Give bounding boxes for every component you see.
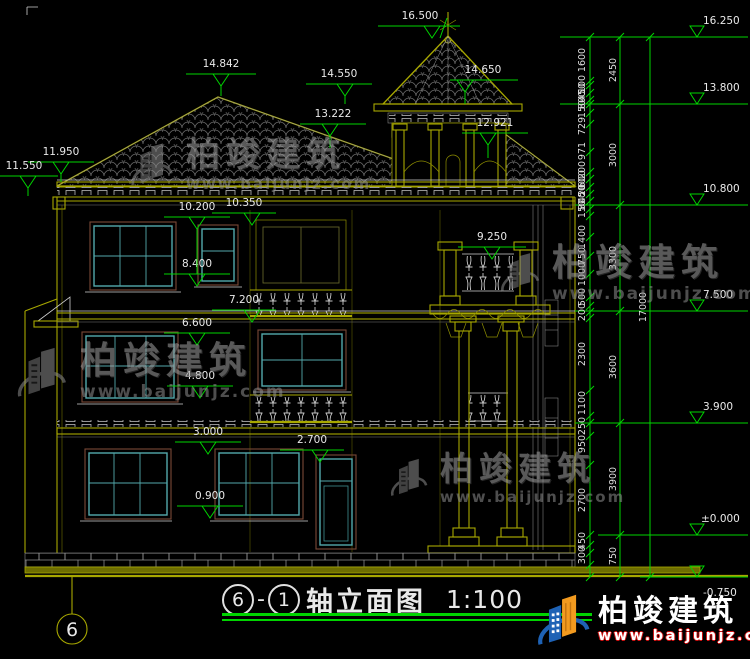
watermark-logo-icon [498,244,544,302]
level-label: 3.900 [703,401,733,413]
level-label: 13.800 [703,82,740,94]
window-1f-left [80,449,172,521]
watermark-logo-icon [14,342,72,404]
watermark: 柏竣建筑 www.baijunjz.com [14,342,286,404]
watermark-url: www.baijunjz.com [440,488,625,506]
dim-label: 1600 [577,48,588,72]
porch-columns [449,316,527,546]
dim-label: 1100 [577,391,588,415]
watermark-url: www.baijunjz.com [552,284,750,304]
dim-label: 200 [577,303,588,321]
watermark: 柏竣建筑 www.baijunjz.com [498,244,750,304]
watermark-brand: 柏竣建筑 [186,138,371,172]
elevation-drawing: 16.500 14.842 14.550 14.650 13.222 12.92… [0,0,750,659]
level-label: 16.500 [402,10,439,22]
level-marks-right: 16.250 13.800 10.800 7.500 3.900 ±0.000 … [690,15,740,599]
window-1f-center [210,449,308,521]
level-label: 11.550 [6,160,43,172]
sheet-corner-mark [27,7,38,15]
level-label: 2.700 [297,434,327,446]
side-windows-right [545,300,558,456]
level-label: 3.000 [193,426,223,438]
dim-label: 150 [577,100,588,118]
watermark-url: www.baijunjz.com [80,382,286,402]
watermark-brand: 柏竣建筑 [552,244,750,281]
cad-elevation-sheet: 16.500 14.842 14.550 14.650 13.222 12.92… [0,0,750,659]
level-label: 14.550 [321,68,358,80]
window-3f-narrow [194,225,242,287]
company-logo: 柏竣建筑 www.baijunjz.com [534,588,750,652]
level-label: 14.842 [203,58,240,70]
balustrade-2f-porch [468,393,508,421]
axis-dash: - [257,587,265,612]
level-label: 9.250 [477,231,507,243]
level-label: 10.350 [226,197,263,209]
dim-label: 300 [577,546,588,564]
axis-bubble-label: 6 [66,619,78,641]
level-label: 10.800 [703,183,740,195]
level-label: ±0.000 [701,513,740,525]
level-label: 16.250 [703,15,740,27]
level-label: 14.650 [465,64,502,76]
drawing-scale: 1:100 [446,585,523,614]
watermark-brand: 柏竣建筑 [80,342,286,379]
dim-label: 971 [577,142,588,160]
window-3f-center [256,220,346,290]
company-logo-url: www.baijunjz.com [598,628,750,644]
balustrade-3f-center [250,290,352,316]
ground-plinth [25,553,748,576]
axis-circle-end: 1 [268,584,300,616]
axis-circle-start: 6 [222,584,254,616]
dim-label: 3600 [608,355,619,379]
entry-door [316,455,356,549]
dim-label: 729 [577,117,588,135]
dim-label: 250 [577,417,588,435]
watermark: 柏竣建筑 www.baijunjz.com [128,138,371,193]
watermark-brand: 柏竣建筑 [440,452,625,485]
level-label: 12.921 [477,117,514,129]
window-3f-left [85,222,181,292]
level-label: 10.200 [179,201,216,213]
dim-label: 2450 [608,58,619,82]
level-label: 0.900 [195,490,225,502]
turret [374,12,522,186]
company-logo-brand: 柏竣建筑 [598,596,750,628]
watermark: 柏竣建筑 www.baijunjz.com [388,452,625,506]
company-logo-icon [534,588,592,652]
dim-label: 3000 [608,143,619,167]
axis-grid-6: 6 [57,576,87,644]
level-label: 11.950 [43,146,80,158]
dim-label: 2300 [577,342,588,366]
watermark-url: www.baijunjz.com [186,175,371,193]
level-label: 13.222 [315,108,352,120]
watermark-logo-icon [388,452,432,504]
dim-label: 150 [577,200,588,218]
level-label: 6.600 [182,317,212,329]
dim-label: 750 [608,547,619,565]
level-label: 7.200 [229,294,259,306]
watermark-logo-icon [128,138,178,192]
